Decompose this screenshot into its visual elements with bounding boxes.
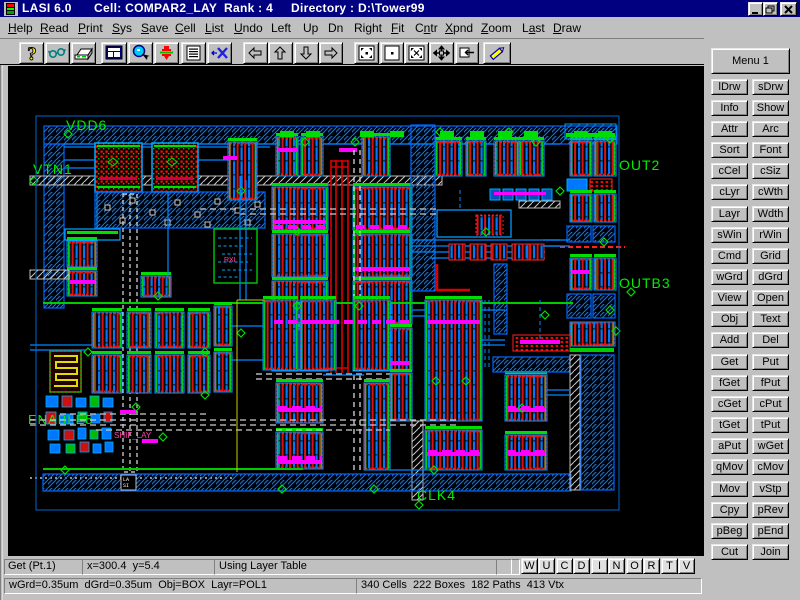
svg-text:CLK4: CLK4 xyxy=(417,487,456,503)
svg-text:RXL: RXL xyxy=(224,257,238,264)
svg-text:SI: SI xyxy=(123,483,129,489)
svg-text:VDD6: VDD6 xyxy=(66,117,107,133)
svg-text:OUT2: OUT2 xyxy=(619,157,660,173)
svg-text:?: ? xyxy=(27,44,37,63)
svg-text:VTN1: VTN1 xyxy=(33,161,73,177)
svg-text:OUTB3: OUTB3 xyxy=(619,275,671,291)
svg-text:SHIF_LAY: SHIF_LAY xyxy=(114,431,152,440)
